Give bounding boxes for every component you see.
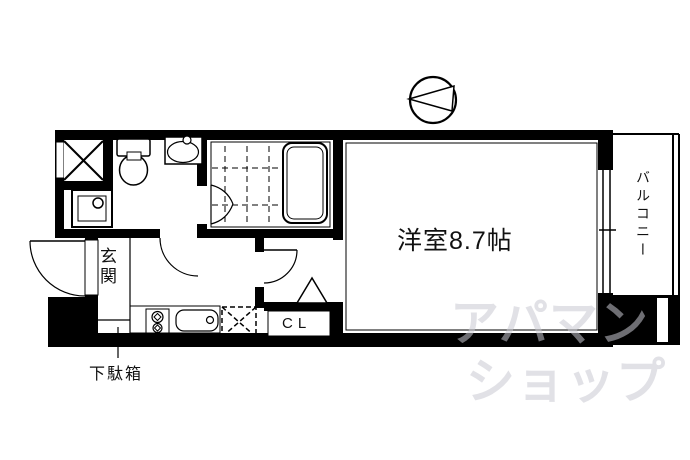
entrance-label: 玄関 — [94, 247, 119, 287]
shower-floor-icon — [212, 146, 280, 226]
bathtub-icon — [283, 143, 327, 223]
closet-door-icon — [297, 278, 327, 303]
wall-segment — [55, 181, 113, 190]
floorplan-canvas: アパマン ショップ 洋室8.7帖 バルコニー 玄関 CL 下駄箱 — [0, 0, 690, 460]
shoe-box-label: 下駄箱 — [89, 360, 143, 384]
wall-segment — [48, 297, 98, 347]
compass-icon — [409, 77, 456, 123]
kitchen-counter — [130, 306, 220, 333]
wall-segment — [197, 224, 207, 238]
balcony-label: バルコニー — [633, 170, 653, 260]
room-size-label: 洋室8.7帖 — [397, 221, 513, 257]
pipe-space-icon — [64, 140, 103, 181]
entrance-door-icon — [30, 240, 98, 296]
refrigerator-space-icon — [222, 307, 256, 337]
wall-segment — [598, 130, 613, 170]
wall-segment — [333, 132, 343, 240]
toilet-icon — [117, 139, 150, 185]
wash-basin-icon — [165, 136, 202, 164]
bathroom-outline — [211, 142, 330, 227]
faucet-icon — [207, 317, 214, 324]
wall-segment — [255, 287, 264, 308]
watermark-line2: ショップ — [466, 342, 666, 413]
wall-segment — [55, 229, 160, 238]
kitchen-sink-icon — [176, 310, 218, 331]
washroom-door-icon — [160, 238, 198, 276]
closet-label: CL — [282, 315, 311, 332]
bathtub-inner — [287, 147, 323, 219]
hall-door-icon — [264, 250, 297, 283]
balcony-window-icon — [599, 170, 616, 293]
bathroom — [211, 142, 330, 227]
meter-box-window — [56, 142, 64, 178]
balcony-service-slot — [657, 298, 668, 342]
washing-machine-pan-icon — [72, 190, 112, 227]
wall-segment — [198, 229, 343, 238]
wall-segment — [255, 238, 264, 252]
